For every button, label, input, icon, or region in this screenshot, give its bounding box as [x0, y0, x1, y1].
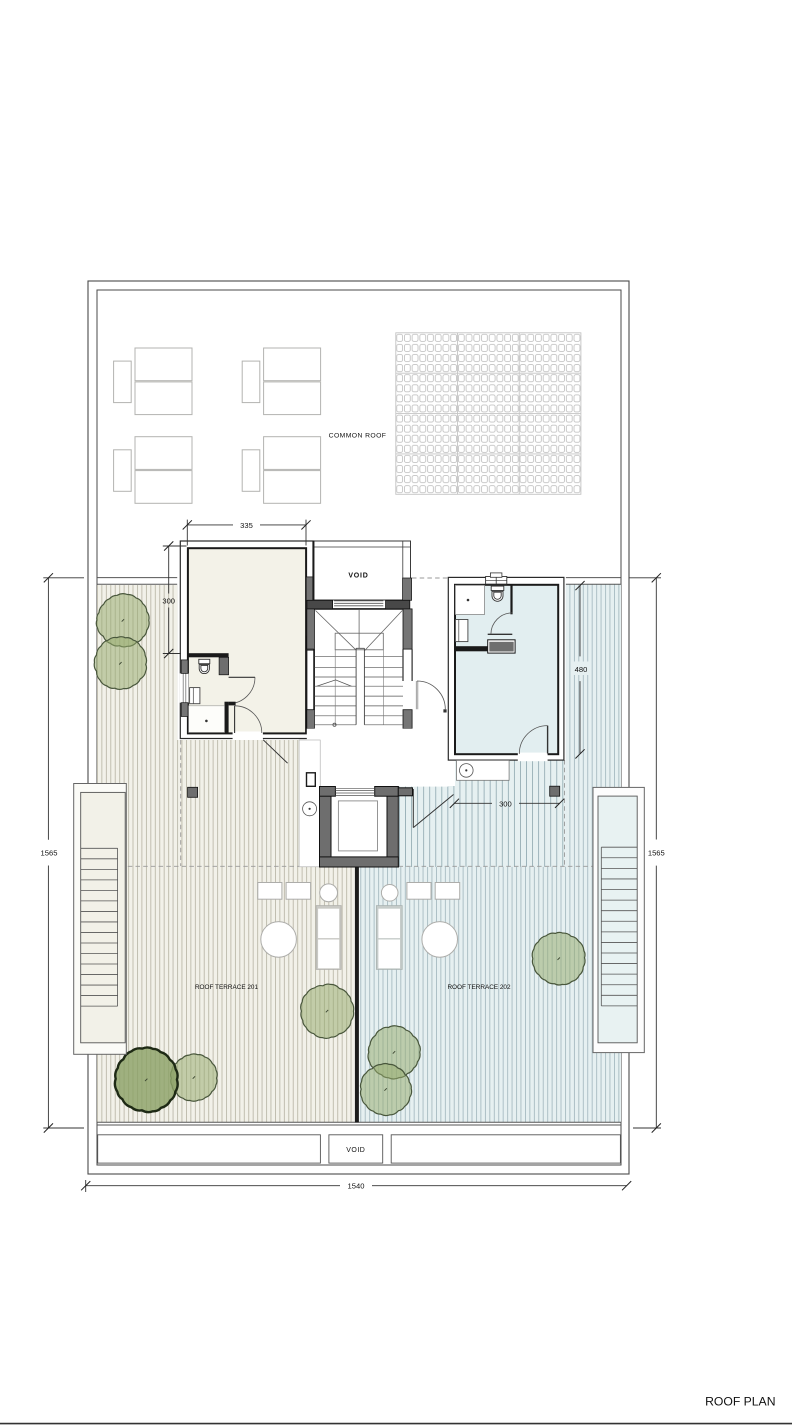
svg-text:ROOF TERRACE 202: ROOF TERRACE 202 [447, 984, 511, 991]
svg-text:1540: 1540 [348, 1182, 365, 1191]
svg-text:COMMON ROOF: COMMON ROOF [329, 433, 387, 440]
svg-text:300: 300 [162, 597, 175, 606]
svg-text:480: 480 [575, 665, 588, 674]
svg-text:ROOF PLAN: ROOF PLAN [705, 1395, 775, 1409]
svg-text:1565: 1565 [648, 848, 665, 857]
svg-text:VOID: VOID [346, 1147, 365, 1154]
svg-text:335: 335 [240, 521, 253, 530]
svg-text:1565: 1565 [41, 848, 58, 857]
svg-text:VOID: VOID [348, 572, 368, 579]
svg-text:ROOF TERRACE 201: ROOF TERRACE 201 [195, 984, 259, 991]
svg-text:300: 300 [499, 799, 512, 808]
